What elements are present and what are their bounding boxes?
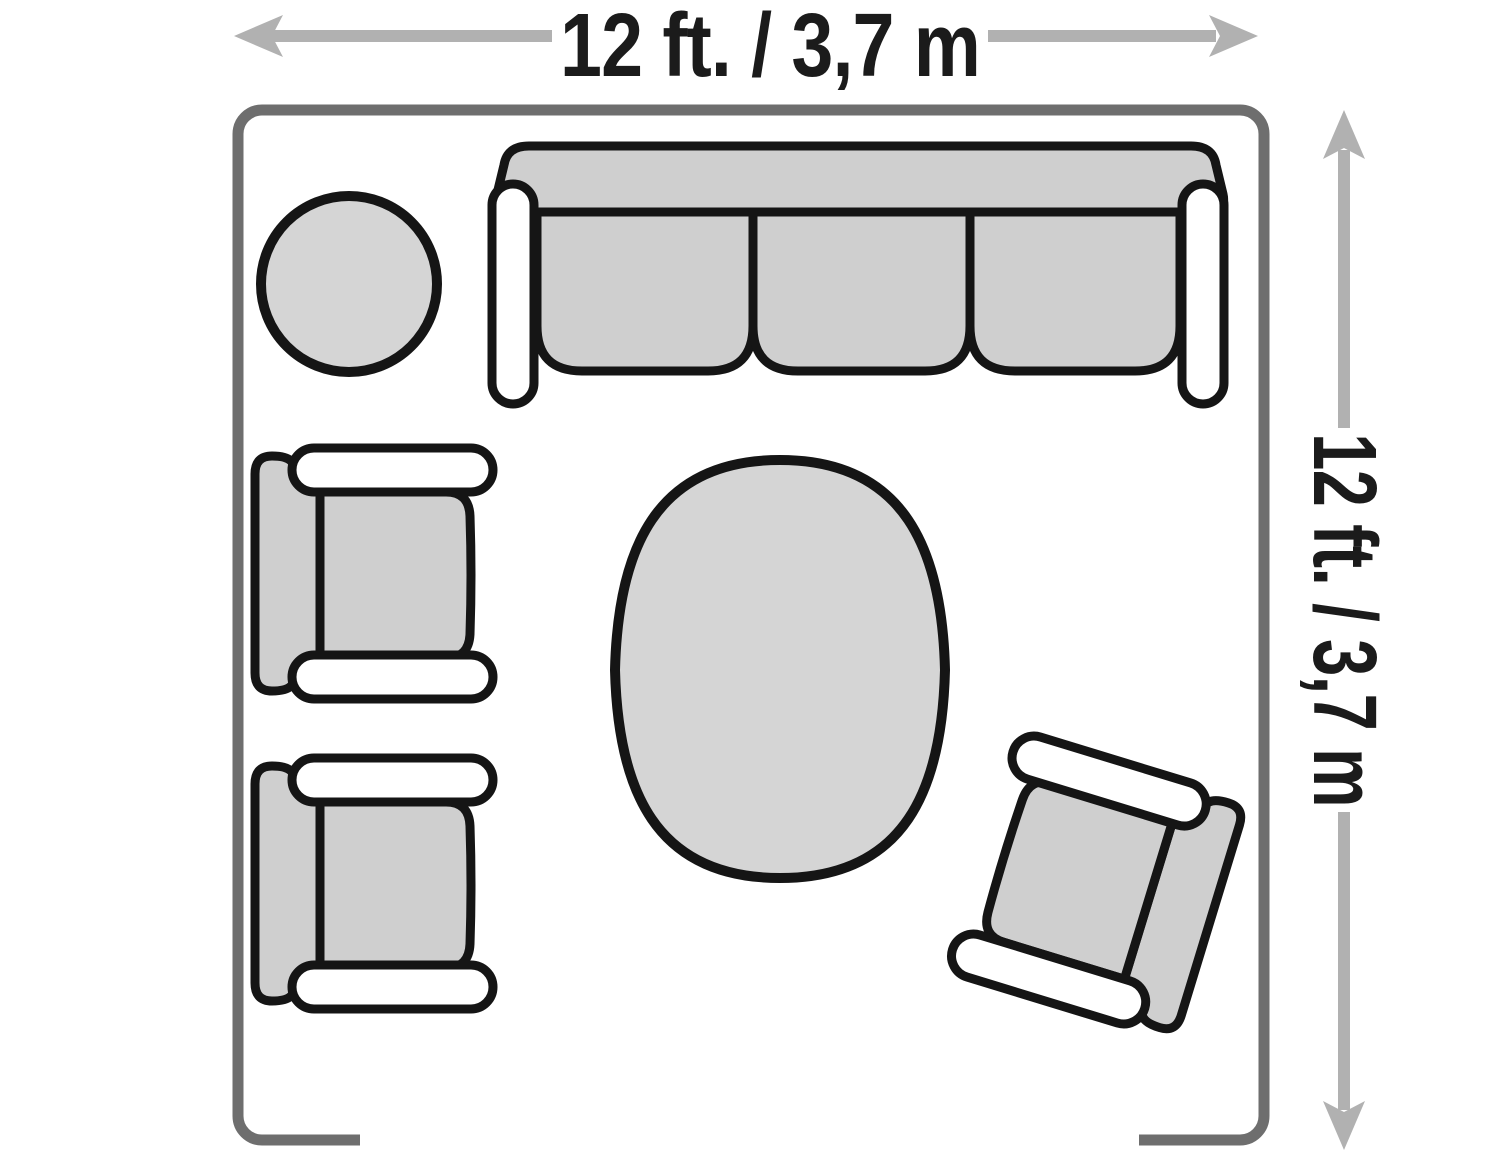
door-opening [360, 1130, 1139, 1152]
floor-plan-diagram: 12 ft. / 3,7 m 12 ft. / 3,7 m [0, 0, 1500, 1160]
round-side-table [261, 196, 437, 372]
armchair-lower-left [255, 758, 493, 1009]
top-dimension: 12 ft. / 3,7 m [234, 0, 1258, 96]
arrowhead-right-icon [1209, 15, 1258, 57]
top-dimension-label: 12 ft. / 3,7 m [560, 0, 980, 96]
floor-plan-canvas: 12 ft. / 3,7 m 12 ft. / 3,7 m [0, 0, 1500, 1160]
oval-coffee-table [615, 460, 945, 878]
armchair-upper-left [255, 448, 493, 699]
sofa-cushion-middle [753, 212, 970, 371]
sofa-cushion-left [537, 212, 753, 371]
right-dimension: 12 ft. / 3,7 m [1294, 110, 1394, 1150]
sofa-cushion-right [970, 212, 1180, 371]
sofa-armrest-right [1182, 184, 1224, 404]
right-dimension-label: 12 ft. / 3,7 m [1294, 433, 1394, 807]
sofa-armrest-left [492, 184, 534, 404]
sofa-backrest [496, 146, 1223, 212]
three-seat-sofa [492, 146, 1224, 404]
